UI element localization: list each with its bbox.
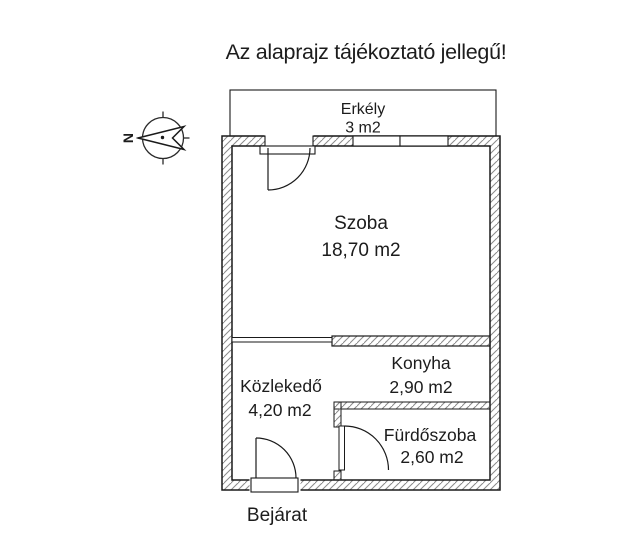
entrance-label: Bejárat — [247, 505, 308, 526]
plan-disclaimer-title: Az alaprajz tájékoztató jellegű! — [226, 40, 507, 64]
interior-wall-room-kitchen — [332, 336, 490, 346]
compass-north-icon: N — [120, 112, 190, 165]
kitchen-area-label: 2,90 m2 — [389, 377, 452, 397]
entrance-opening — [250, 478, 301, 492]
bathroom-area-label: 2,60 m2 — [400, 447, 463, 467]
balcony-name-label: Erkély — [341, 101, 385, 118]
interior-partition-room-hallway — [232, 338, 332, 343]
floor-plan-page: Az alaprajz tájékoztató jellegű! N Erkél… — [0, 0, 640, 536]
balcony-area-label: 3 m2 — [345, 120, 381, 137]
window-2 — [400, 136, 448, 146]
hallway-name-label: Közlekedő — [240, 376, 322, 396]
window-1 — [353, 136, 400, 146]
room-area-label: 18,70 m2 — [321, 240, 400, 261]
compass-north-label: N — [120, 133, 136, 143]
bathroom-door — [339, 426, 389, 470]
bathroom-name-label: Fürdőszoba — [384, 425, 477, 445]
room-name-label: Szoba — [334, 213, 388, 234]
entrance-door — [256, 438, 296, 478]
kitchen-name-label: Konyha — [391, 353, 451, 373]
floor-plan-canvas: Az alaprajz tájékoztató jellegű! N Erkél… — [0, 0, 640, 536]
hallway-area-label: 4,20 m2 — [248, 400, 311, 420]
